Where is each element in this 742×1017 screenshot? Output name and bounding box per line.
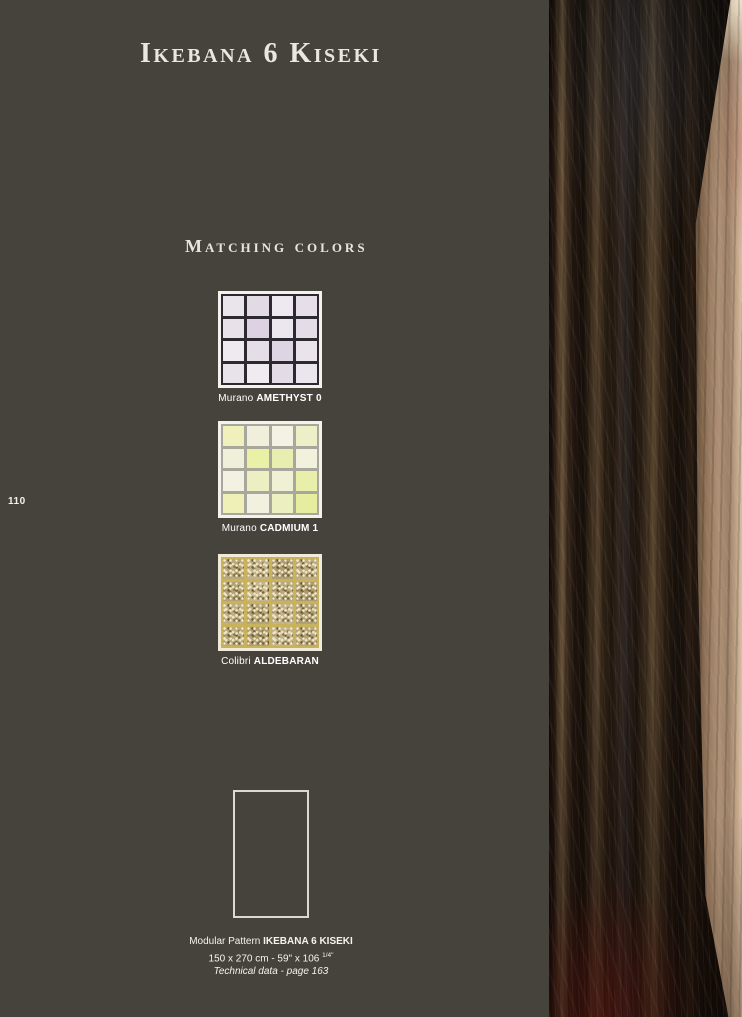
mosaic-tile <box>223 296 244 316</box>
mosaic-tile <box>296 604 317 624</box>
mosaic-tile <box>272 627 293 647</box>
swatch-name: ALDEBARAN <box>254 656 319 667</box>
mosaic-tile <box>296 319 317 339</box>
modular-pattern-outline <box>233 790 309 918</box>
mosaic-tile <box>272 494 293 514</box>
mosaic-tile <box>272 559 293 579</box>
modular-pattern-label-regular: Modular Pattern <box>189 936 263 947</box>
mosaic-tile <box>272 296 293 316</box>
mosaic-tile <box>247 604 268 624</box>
swatch-brand: Colibri <box>221 656 254 667</box>
modular-pattern-block: Modular Pattern IKEBANA 6 KISEKI 150 x 2… <box>130 790 412 979</box>
mosaic-tile <box>247 296 268 316</box>
mosaic-tile <box>296 449 317 469</box>
mosaic-tile <box>247 426 268 446</box>
mosaic-tile <box>247 582 268 602</box>
mosaic-tile <box>223 426 244 446</box>
swatch-label: Colibri ALDEBARAN <box>218 656 322 667</box>
mosaic-tile <box>223 604 244 624</box>
mosaic-tile <box>296 471 317 491</box>
mosaic-tile <box>272 449 293 469</box>
modular-pattern-label-bold: IKEBANA 6 KISEKI <box>263 936 353 947</box>
mosaic-tile <box>247 471 268 491</box>
swatch-aldebaran: Colibri ALDEBARAN <box>218 554 322 667</box>
mosaic-tile <box>247 319 268 339</box>
swatch-name: CADMIUM 1 <box>260 523 318 534</box>
swatch-name: AMETHYST 0 <box>256 393 321 404</box>
mosaic-tile <box>247 494 268 514</box>
mosaic-tile <box>223 364 244 384</box>
mosaic-tile <box>272 319 293 339</box>
mosaic-tile <box>272 582 293 602</box>
swatch-amethyst-0: Murano AMETHYST 0 <box>218 291 322 404</box>
dimensions-fraction: 1/4" <box>322 952 333 959</box>
mosaic-tile <box>223 582 244 602</box>
mosaic-tile <box>296 494 317 514</box>
mosaic-tile <box>296 582 317 602</box>
swatch-brand: Murano <box>222 523 260 534</box>
modular-pattern-label: Modular Pattern IKEBANA 6 KISEKI <box>130 935 412 949</box>
mosaic-preview <box>218 421 322 518</box>
mosaic-tile <box>223 319 244 339</box>
mosaic-tile <box>247 559 268 579</box>
mosaic-tile <box>296 559 317 579</box>
mosaic-tile <box>223 471 244 491</box>
swatch-label: Murano AMETHYST 0 <box>218 393 322 404</box>
mosaic-tile <box>223 341 244 361</box>
mosaic-tile <box>296 341 317 361</box>
mosaic-tile <box>247 449 268 469</box>
technical-data-note: Technical data - page 163 <box>130 965 412 979</box>
catalog-page: Ikebana 6 Kiseki Matching colors 110 Mur… <box>0 0 742 1017</box>
dimensions-text: 150 x 270 cm - 59" x 106 <box>209 953 323 964</box>
mosaic-preview <box>218 554 322 651</box>
modular-pattern-dimensions: 150 x 270 cm - 59" x 106 1/4" <box>130 949 412 966</box>
swatch-cadmium-1: Murano CADMIUM 1 <box>218 421 322 534</box>
mosaic-tile <box>247 341 268 361</box>
mosaic-tile <box>296 627 317 647</box>
mosaic-tile <box>296 426 317 446</box>
mosaic-tile <box>223 627 244 647</box>
mosaic-preview <box>218 291 322 388</box>
mosaic-tile <box>223 494 244 514</box>
mosaic-tile <box>272 604 293 624</box>
mosaic-tile <box>272 426 293 446</box>
swatch-brand: Murano <box>218 393 256 404</box>
mosaic-tile <box>223 449 244 469</box>
mosaic-tile <box>296 364 317 384</box>
mosaic-tile <box>296 296 317 316</box>
mosaic-tile <box>272 364 293 384</box>
mosaic-tile <box>272 471 293 491</box>
mosaic-tile <box>223 559 244 579</box>
swatch-label: Murano CADMIUM 1 <box>218 523 322 534</box>
mosaic-tile <box>272 341 293 361</box>
mosaic-tile <box>247 364 268 384</box>
mosaic-tile <box>247 627 268 647</box>
